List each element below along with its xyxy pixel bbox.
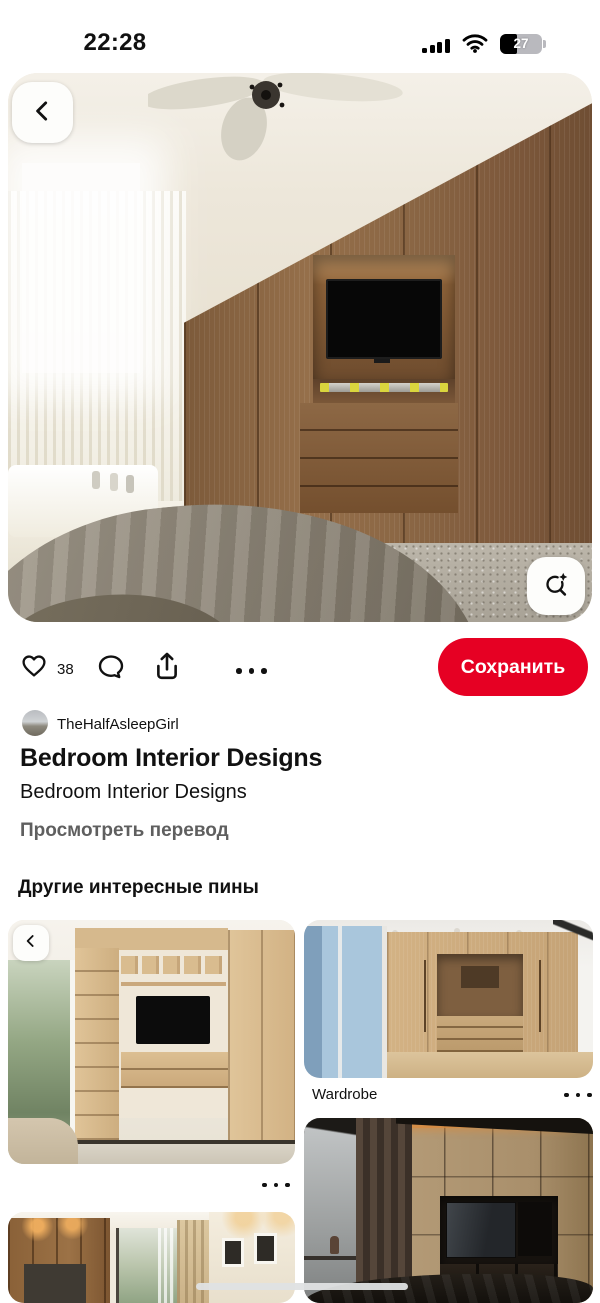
scene-niche-screen [461,966,499,988]
cellular-signal-icon [422,37,454,53]
scene-vase [330,1236,339,1254]
scene-storage-boxes [121,956,226,974]
chevron-left-icon [30,98,56,127]
scene-media-devices [320,383,448,392]
related-pin-1-image[interactable] [8,920,295,1164]
back-button[interactable] [12,82,73,143]
scene-picture-frame [222,1238,244,1267]
scene-bottles [92,471,100,489]
scene-shelf-tower [75,948,119,1140]
like-count: 38 [57,661,74,678]
scene-ceiling-fitting [553,920,593,948]
author-avatar[interactable] [22,710,48,736]
scene-sheer-curtain [158,1228,174,1303]
pin-title: Bedroom Interior Designs [20,744,322,773]
scene-tv [446,1202,516,1258]
related-pin-2-title[interactable]: Wardrobe [312,1086,377,1103]
scene-floor [387,1052,593,1078]
wifi-icon [462,33,488,58]
scene-shelf [121,982,226,986]
scene-window-light [22,163,140,373]
scene-curtain [177,1220,209,1303]
scene-drawers [437,1016,523,1052]
share-button[interactable] [151,651,183,685]
battery-percent: 27 [500,34,542,54]
scene-tv [136,996,210,1044]
scene-top-cabinet [75,928,228,950]
scene-drawers [300,403,458,513]
translate-link[interactable]: Просмотреть перевод [20,820,229,842]
more-options-icon[interactable] [236,666,267,676]
grid-back-badge[interactable] [13,925,49,961]
chevron-left-icon [23,933,39,954]
battery-nub [543,40,546,48]
scene-right-cabinets [228,930,295,1142]
home-indicator[interactable] [196,1283,408,1290]
related-pin-2-more-icon[interactable] [564,1091,592,1099]
scene-curtains [356,1118,412,1303]
pinterest-pin-screen: 22:28 27 [0,0,600,1303]
like-button[interactable] [19,653,49,683]
scene-handles [424,960,426,1032]
lens-sparkle-icon [542,571,570,602]
related-section-header: Другие интересные пины [18,877,259,899]
scene-spotlights [22,1218,92,1244]
scene-window-city [304,926,387,1078]
related-pin-1-more-icon[interactable] [262,1181,290,1189]
comment-bubble-icon [96,652,126,687]
pin-description: Bedroom Interior Designs [20,781,247,804]
heart-icon [19,651,49,685]
save-button[interactable]: Сохранить [438,638,588,696]
scene-tv [326,279,442,359]
pin-image[interactable] [8,73,592,622]
scene-window-mullion [338,926,342,1078]
related-pin-2-image[interactable] [304,920,593,1078]
battery-icon: 27 [500,34,542,54]
status-time: 22:28 [70,29,160,57]
related-pin-3-image[interactable] [304,1118,593,1303]
ceiling-fan [148,73,408,161]
scene-tv-panel [518,1202,552,1256]
visual-search-button[interactable] [527,557,585,615]
scene-couch [8,1118,78,1164]
author-name[interactable]: TheHalfAsleepGirl [57,716,179,733]
scene-dark-cabinet [24,1264,86,1303]
scene-picture-frame [254,1233,277,1264]
scene-console-drawers [121,1052,228,1088]
share-icon [151,649,183,688]
comment-button[interactable] [96,654,126,684]
